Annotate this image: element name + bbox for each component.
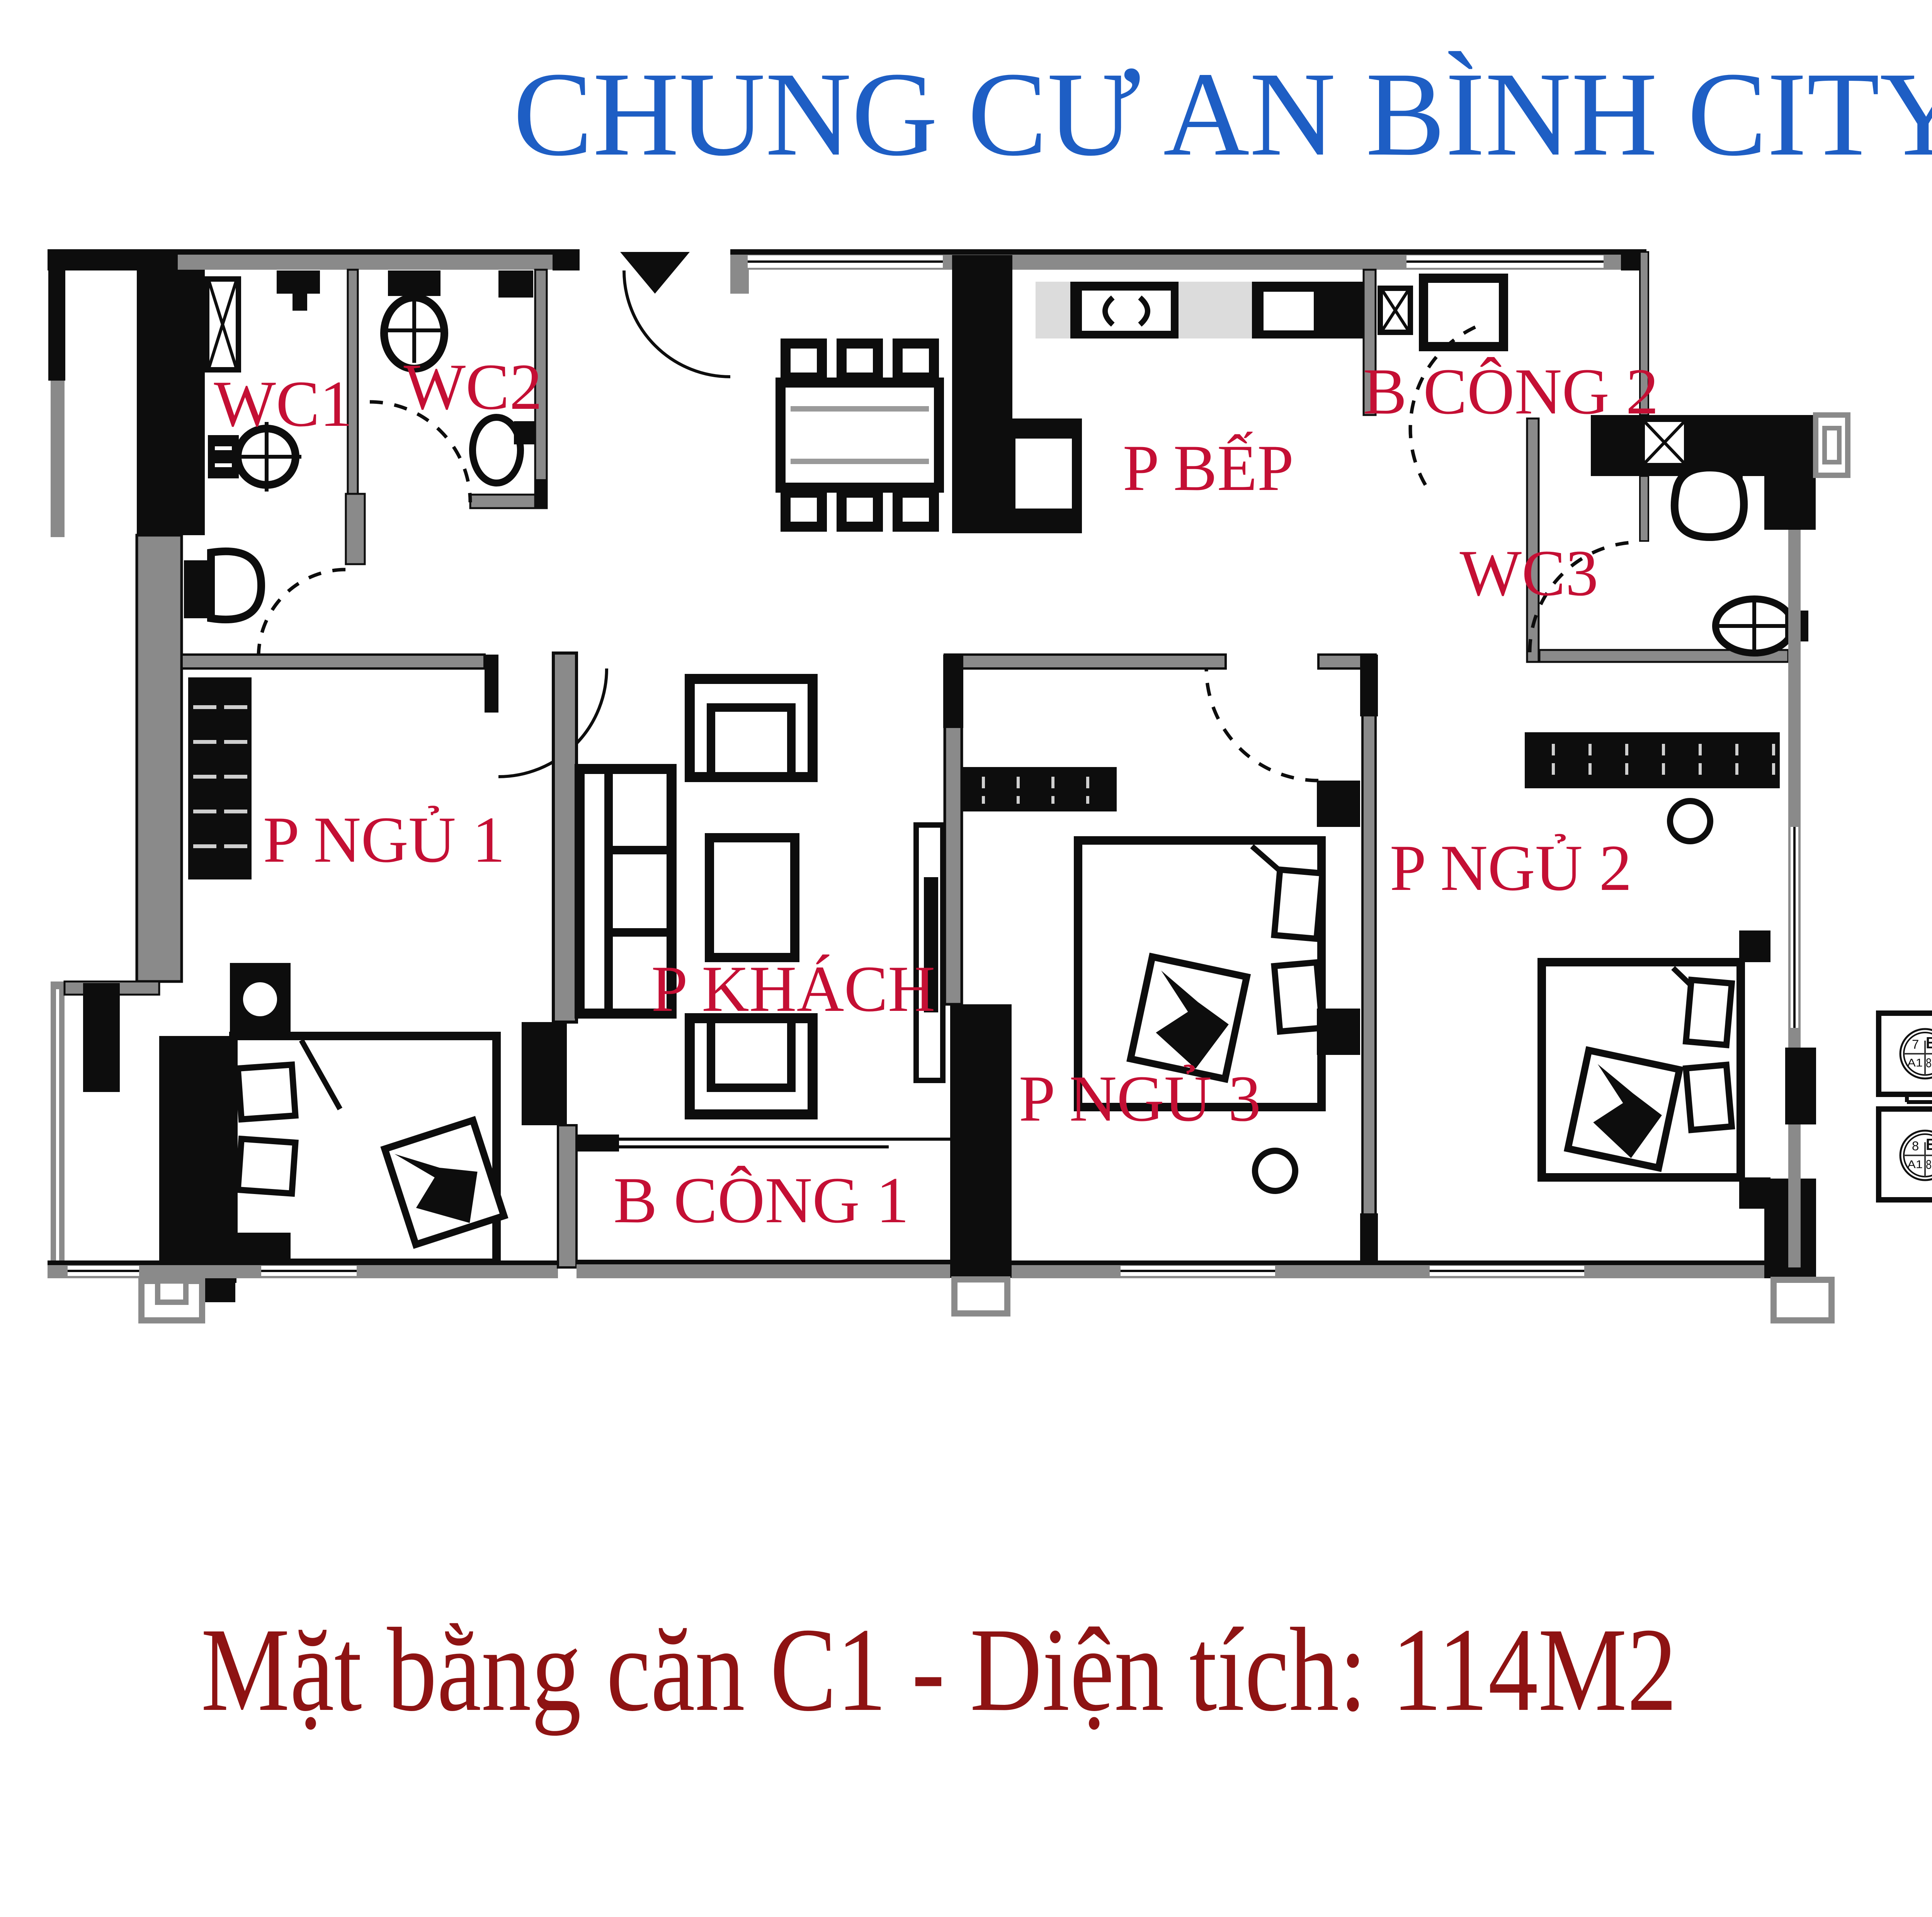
svg-text:WC2: WC2 [404,350,543,423]
svg-text:P NGỦ 2: P NGỦ 2 [1390,832,1632,904]
svg-text:WC1: WC1 [214,367,353,440]
svg-text:B CÔNG 2: B CÔNG 2 [1363,355,1658,428]
svg-text:B CÔNG 1: B CÔNG 1 [613,1164,909,1237]
svg-text:83.7: 83.7 [1926,1157,1932,1172]
svg-text:WC3: WC3 [1460,537,1599,609]
svg-text:A1: A1 [1907,1158,1923,1171]
svg-text:A1: A1 [1907,1057,1923,1069]
svg-text:7: 7 [1912,1037,1919,1051]
svg-text:P KHÁCH: P KHÁCH [651,953,935,1025]
svg-text:B4: B4 [1926,1135,1932,1153]
svg-text:8: 8 [1912,1139,1919,1153]
svg-text:P BẾP: P BẾP [1123,432,1294,504]
svg-text:CHUNG CƯ AN BÌNH CITY: CHUNG CƯ AN BÌNH CITY [513,48,1932,181]
svg-text:P NGỦ 3: P NGỦ 3 [1019,1062,1261,1135]
svg-text:Mặt bằng căn C1 - Diện tích: 1: Mặt bằng căn C1 - Diện tích: 114M2 [201,1604,1677,1736]
svg-text:P NGỦ 1: P NGỦ 1 [263,803,505,876]
svg-text:83.7: 83.7 [1926,1056,1932,1070]
svg-text:B3: B3 [1926,1034,1932,1052]
